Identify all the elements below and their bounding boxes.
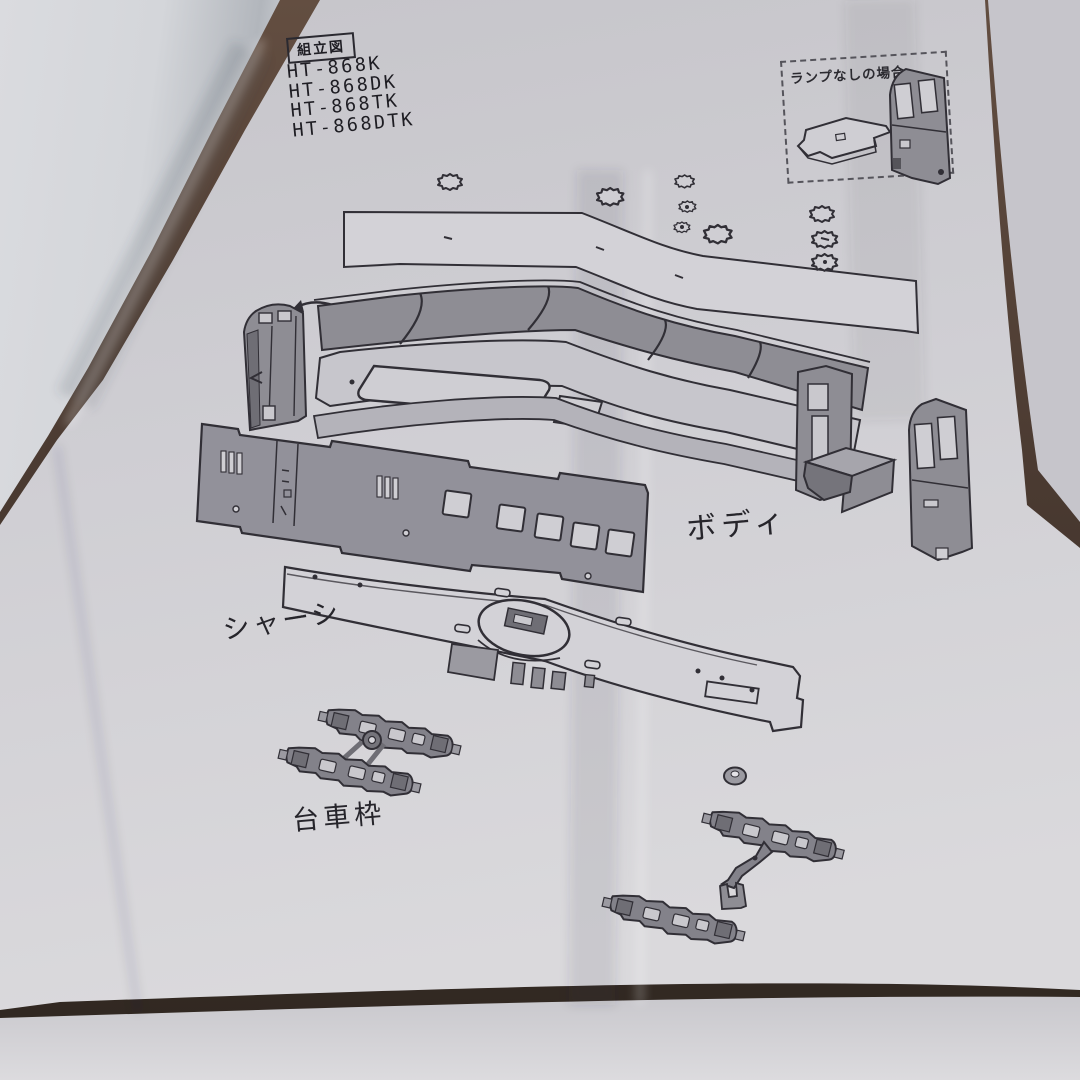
louver-vent [377, 476, 398, 499]
louver-vent [221, 451, 242, 474]
bench-part [804, 448, 894, 512]
inset-floor-plate-part [798, 118, 890, 164]
end-cap-part [244, 304, 306, 430]
body-part-label: ボディ [684, 496, 790, 549]
inset-end-panel-part [890, 69, 950, 184]
truck-frame-part-label: 台車枠 [290, 791, 386, 838]
photo-of-assembly-instruction-sheet: 組立図 HT-868K HT-868DK HT-868TK HT-868DTK … [0, 0, 1080, 1080]
bogie-assembly-part [275, 703, 463, 803]
end-panel-part [909, 399, 972, 560]
printed-content: 組立図 HT-868K HT-868DK HT-868TK HT-868DTK … [0, 0, 1080, 1080]
side-panel-part [197, 424, 648, 592]
chassis-part [283, 567, 803, 731]
spacer-ring-part [724, 768, 746, 785]
exploded-diagram [0, 0, 1080, 1080]
bogie-exploded-parts [599, 805, 846, 951]
